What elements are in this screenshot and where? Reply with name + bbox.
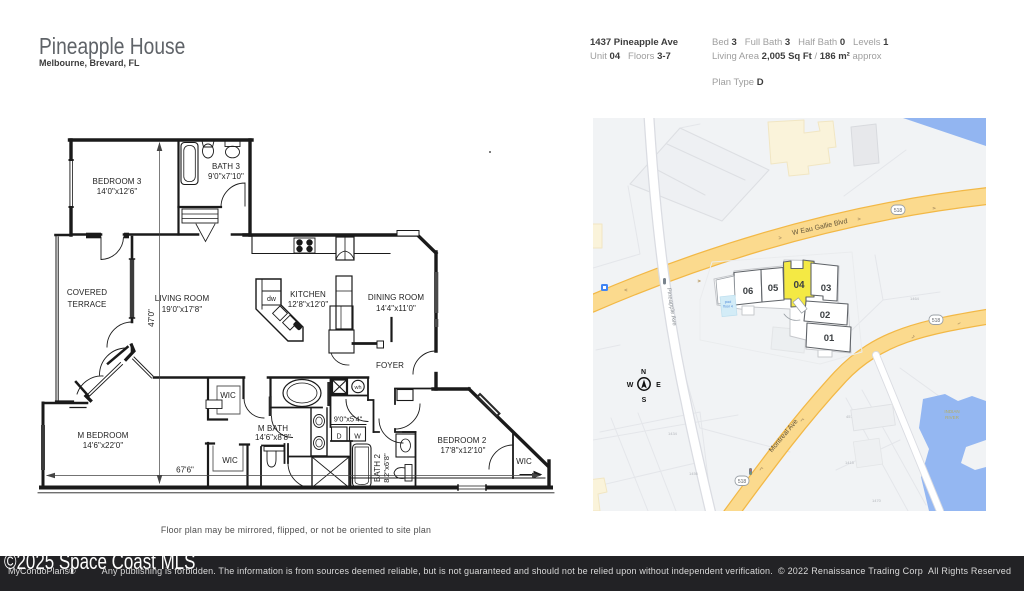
svg-text:W: W (354, 434, 361, 441)
svg-text:14'6"x8'8": 14'6"x8'8" (255, 433, 291, 442)
svg-text:14'0"x12'6": 14'0"x12'6" (97, 187, 138, 196)
svg-text:FOYER: FOYER (376, 361, 404, 370)
svg-text:BATH 2: BATH 2 (373, 454, 382, 482)
svg-text:COVERED: COVERED (67, 288, 107, 297)
svg-text:67'6": 67'6" (176, 466, 194, 475)
svg-text:KITCHEN: KITCHEN (290, 290, 326, 299)
svg-text:wh: wh (353, 385, 361, 391)
svg-text:BEDROOM 3: BEDROOM 3 (93, 177, 142, 186)
svg-text:M BEDROOM: M BEDROOM (77, 431, 128, 440)
svg-text:WIC: WIC (222, 456, 238, 465)
svg-text:17'8"x12'10": 17'8"x12'10" (440, 446, 485, 455)
svg-text:8'2"x6'8": 8'2"x6'8" (382, 453, 391, 483)
svg-text:14'6"x22'0": 14'6"x22'0" (83, 441, 124, 450)
svg-text:TERRACE: TERRACE (68, 300, 107, 309)
svg-text:DINING ROOM: DINING ROOM (368, 293, 424, 302)
svg-text:WIC: WIC (220, 391, 236, 400)
svg-text:dw: dw (267, 296, 277, 303)
svg-text:19'0"x17'8": 19'0"x17'8" (162, 305, 203, 314)
svg-text:LIVING ROOM: LIVING ROOM (155, 294, 210, 303)
svg-text:BEDROOM 2: BEDROOM 2 (438, 436, 487, 445)
svg-text:BATH 3: BATH 3 (212, 162, 240, 171)
svg-text:D: D (336, 434, 341, 441)
svg-text:M BATH: M BATH (258, 424, 288, 433)
svg-text:12'8"x12'0": 12'8"x12'0" (288, 300, 329, 309)
svg-text:47'0": 47'0" (147, 309, 156, 327)
svg-text:WIC: WIC (516, 457, 532, 466)
svg-text:9'0"x7'10": 9'0"x7'10" (208, 172, 244, 181)
svg-text:14'4"x11'0": 14'4"x11'0" (376, 304, 416, 313)
